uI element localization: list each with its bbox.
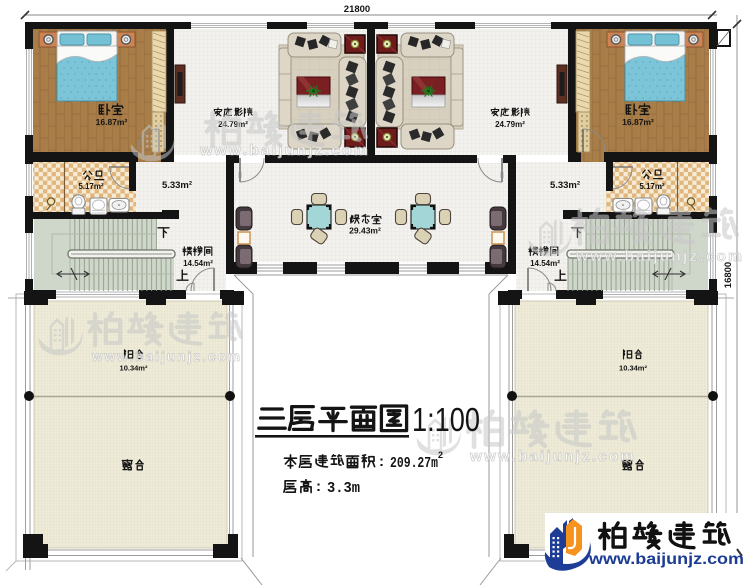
- svg-text:16800: 16800: [723, 262, 734, 288]
- svg-text:3.3m: 3.3m: [327, 480, 360, 497]
- svg-text:www.baijunjz.com: www.baijunjz.com: [199, 142, 370, 159]
- svg-text:2: 2: [438, 450, 443, 460]
- svg-text:www.baijunjz.com: www.baijunjz.com: [588, 551, 744, 568]
- svg-text:21800: 21800: [344, 4, 370, 15]
- svg-text:209.27m: 209.27m: [390, 455, 438, 472]
- svg-text:www.baijunjz.com: www.baijunjz.com: [469, 449, 636, 465]
- svg-text:24.79m²: 24.79m²: [495, 120, 525, 129]
- svg-text:29.43m²: 29.43m²: [349, 226, 381, 236]
- svg-text:www.baijunjz.com: www.baijunjz.com: [575, 249, 744, 265]
- svg-text::: :: [379, 453, 384, 470]
- svg-text:www.baijunjz.com: www.baijunjz.com: [91, 349, 242, 364]
- svg-text:5.17m²: 5.17m²: [78, 182, 104, 191]
- svg-text:14.54m²: 14.54m²: [183, 259, 213, 268]
- svg-text:5.33m²: 5.33m²: [550, 180, 580, 191]
- svg-text:1:100: 1:100: [412, 401, 480, 438]
- svg-text:5.33m²: 5.33m²: [162, 180, 192, 191]
- svg-text:16.87m²: 16.87m²: [622, 117, 654, 127]
- svg-text:16.87m²: 16.87m²: [96, 117, 128, 127]
- svg-text::: :: [316, 478, 321, 495]
- svg-text:10.34m²: 10.34m²: [619, 364, 647, 373]
- svg-text:5.17m²: 5.17m²: [639, 182, 665, 191]
- svg-text:10.34m²: 10.34m²: [120, 364, 148, 373]
- svg-text:14.54m²: 14.54m²: [530, 259, 560, 268]
